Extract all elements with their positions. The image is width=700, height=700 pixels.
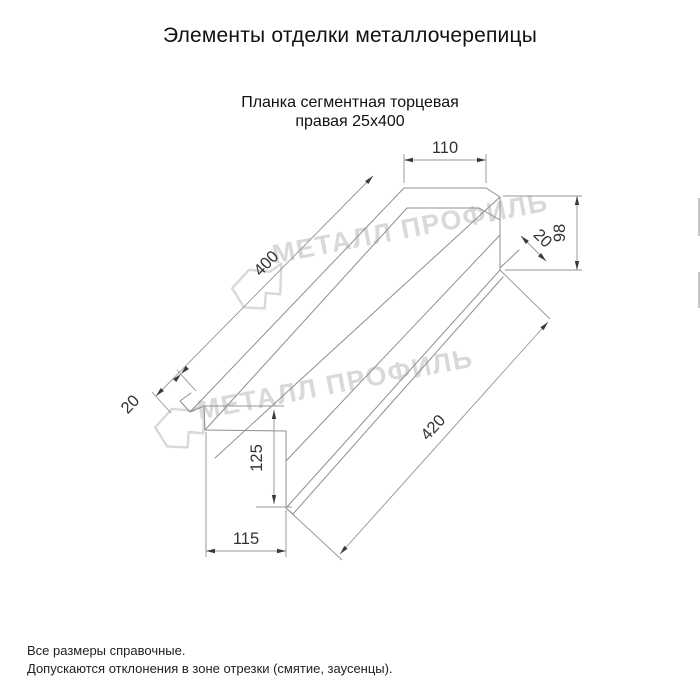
footnotes: Все размеры справочные. Допускаются откл… [27, 642, 393, 678]
watermark-text-upper: МЕТАЛЛ ПРОФИЛЬ [270, 187, 551, 270]
dim-110: 110 [404, 139, 486, 183]
dim-420-label: 420 [417, 411, 449, 444]
dim-110-label: 110 [432, 139, 458, 157]
dim-420: 420 [286, 270, 550, 560]
footnote-line2: Допускаются отклонения в зоне отрезки (с… [27, 660, 393, 678]
drawing-page: Элементы отделки металлочерепицы Планка … [0, 0, 700, 700]
dim-20-left-label: 20 [118, 392, 144, 418]
footnote-line1: Все размеры справочные. [27, 642, 393, 660]
dim-115-label: 115 [233, 530, 259, 548]
watermark-upper: МЕТАЛЛ ПРОФИЛЬ [229, 187, 550, 314]
dim-125-label: 125 [248, 444, 266, 472]
technical-drawing: МЕТАЛЛ ПРОФИЛЬ МЕТАЛЛ ПРОФИЛЬ [0, 0, 700, 700]
